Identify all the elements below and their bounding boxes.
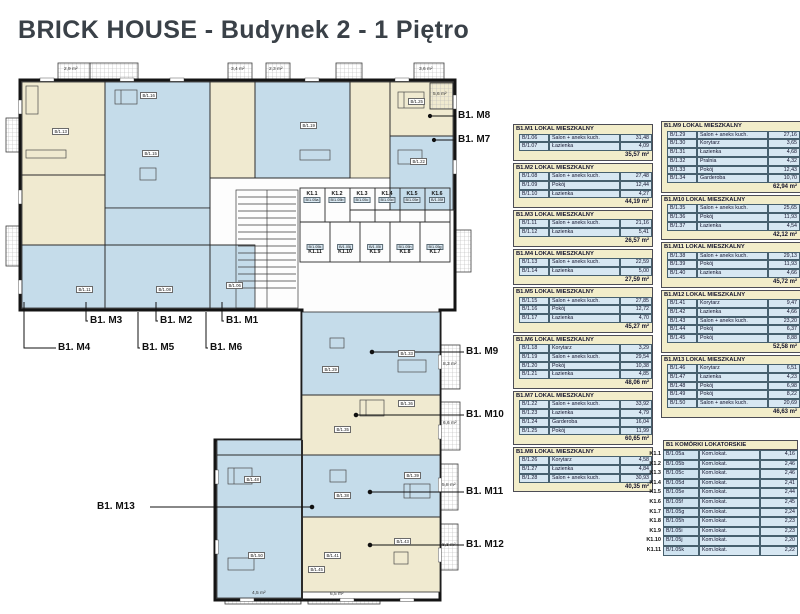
room-area: 8,22 bbox=[768, 390, 800, 399]
room-row: B/1.38Salon + aneks kuch.29,13 bbox=[662, 252, 800, 261]
room-code: B/1.12 bbox=[519, 228, 549, 237]
room-name: Pokój bbox=[697, 382, 768, 391]
room-name: Pokój bbox=[697, 166, 768, 175]
storage-unit-number: K1.11 bbox=[646, 546, 663, 556]
room-name: Salon + aneks kuch. bbox=[549, 474, 620, 483]
room-area: 6,51 bbox=[768, 364, 800, 373]
storage-area: 2,44 bbox=[760, 488, 798, 498]
balcony-area-label: 5,8 m² bbox=[442, 483, 456, 488]
apartment-table-header: B1.M7 LOKAL MIESZKALNY bbox=[514, 392, 652, 401]
storage-header-row: B1 KOMÓRKI LOKATORSKIE bbox=[646, 440, 798, 450]
apartment-table-header: B1.M9 LOKAL MIESZKALNY bbox=[662, 122, 800, 131]
room-name: Pokój bbox=[697, 325, 768, 334]
storage-unit-number: K1.10 bbox=[646, 536, 663, 546]
room-code: B/1.13 bbox=[519, 258, 549, 267]
room-area: 5,00 bbox=[620, 267, 652, 276]
room-code-tag: B/1.22 bbox=[410, 158, 427, 165]
room-code: B/1.41 bbox=[667, 299, 697, 308]
storage-name: Kom.lokat. bbox=[699, 469, 760, 479]
room-area: 4,66 bbox=[768, 269, 800, 278]
apartment-table: B1.M11 LOKAL MIESZKALNYB/1.38Salon + ane… bbox=[661, 242, 800, 287]
room-area: 4,23 bbox=[768, 373, 800, 382]
room-code-tag: B/1.41 bbox=[324, 552, 341, 559]
apartment-table-header: B1.M12 LOKAL MIESZKALNY bbox=[662, 291, 800, 300]
balcony-area-label: 2,3 m² bbox=[269, 67, 283, 72]
room-row: B/1.35Salon + aneks kuch.25,65 bbox=[662, 204, 800, 213]
apartment-total-area: 44,19 m² bbox=[514, 198, 652, 207]
room-area: 3,65 bbox=[768, 139, 800, 148]
room-code: B/1.23 bbox=[519, 409, 549, 418]
storage-code: B/1.05j bbox=[663, 536, 699, 546]
storage-unit-number: K1.8 bbox=[646, 517, 663, 527]
room-row: B/1.48Pokój6,98 bbox=[662, 382, 800, 391]
room-row: B/1.23Łazienka4,79 bbox=[514, 409, 652, 418]
room-code: B/1.32 bbox=[667, 157, 697, 166]
apartment-table: B1.M1 LOKAL MIESZKALNYB/1.06Salon + anek… bbox=[513, 124, 653, 161]
room-code-tag: B/1.50 bbox=[248, 552, 265, 559]
room-area: 4,79 bbox=[620, 409, 652, 418]
room-code: B/1.42 bbox=[667, 308, 697, 317]
storage-unit-number: K1.4 bbox=[646, 479, 663, 489]
room-row: B/1.40Łazienka4,66 bbox=[662, 269, 800, 278]
storage-row: K1.11B/1.05kKom.lokat.2,22 bbox=[646, 546, 798, 556]
apartment-tables-column-2: B1.M9 LOKAL MIESZKALNYB/1.29Salon + anek… bbox=[661, 121, 800, 420]
room-name: Łazienka bbox=[549, 228, 620, 237]
apartment-callout: B1. M12 bbox=[466, 539, 504, 550]
room-code: B/1.16 bbox=[519, 305, 549, 314]
storage-unit-id: K1.11 bbox=[307, 250, 324, 255]
room-area: 25,65 bbox=[768, 204, 800, 213]
room-row: B/1.44Pokój6,37 bbox=[662, 325, 800, 334]
room-code: B/1.19 bbox=[519, 353, 549, 362]
apartment-total-area: 46,63 m² bbox=[662, 408, 800, 417]
room-row: B/1.32Pralnia4,32 bbox=[662, 157, 800, 166]
apartment-table: B1.M2 LOKAL MIESZKALNYB/1.08Salon + anek… bbox=[513, 163, 653, 208]
apartment-table: B1.M12 LOKAL MIESZKALNYB/1.41Korytarz9,4… bbox=[661, 290, 800, 353]
balcony-area-label: 3,4 m² bbox=[231, 67, 245, 72]
room-name: Pokój bbox=[697, 260, 768, 269]
apartment-callout: B1. M6 bbox=[210, 342, 242, 353]
room-area: 12,72 bbox=[620, 305, 652, 314]
storage-code: B/1.05d bbox=[663, 479, 699, 489]
room-area: 10,38 bbox=[620, 362, 652, 371]
storage-code: B/1.05b bbox=[663, 460, 699, 470]
room-name: Salon + aneks kuch. bbox=[697, 399, 768, 408]
balcony-area-label: 8,3 m² bbox=[442, 543, 456, 548]
room-code: B/1.30 bbox=[667, 139, 697, 148]
storage-code: B/1.05k bbox=[663, 546, 699, 556]
apartment-table: B1.M3 LOKAL MIESZKALNYB/1.11Salon + anek… bbox=[513, 210, 653, 247]
room-name: Korytarz bbox=[697, 299, 768, 308]
storage-name: Kom.lokat. bbox=[699, 498, 760, 508]
room-row: B/1.42Łazienka4,66 bbox=[662, 308, 800, 317]
room-area: 29,54 bbox=[620, 353, 652, 362]
room-code: B/1.31 bbox=[667, 148, 697, 157]
room-name: Łazienka bbox=[697, 148, 768, 157]
room-name: Łazienka bbox=[549, 142, 620, 151]
room-code: B/1.21 bbox=[519, 370, 549, 379]
storage-area: 2,24 bbox=[760, 508, 798, 518]
room-code: B/1.07 bbox=[519, 142, 549, 151]
room-area: 31,48 bbox=[620, 134, 652, 143]
storage-unit-id: K1.6 bbox=[429, 192, 445, 197]
balcony-area-label: 6,5 m² bbox=[330, 592, 344, 597]
room-row: B/1.14Łazienka5,00 bbox=[514, 267, 652, 276]
room-code-tag: B/1.45 bbox=[308, 566, 325, 573]
storage-unit-id: K1.8 bbox=[396, 250, 413, 255]
room-row: B/1.19Salon + aneks kuch.29,54 bbox=[514, 353, 652, 362]
room-code: B/1.06 bbox=[519, 134, 549, 143]
storage-table-title: B1 KOMÓRKI LOKATORSKIE bbox=[663, 440, 798, 450]
room-area: 20,69 bbox=[768, 399, 800, 408]
storage-row: K1.8B/1.05hKom.lokat.2,23 bbox=[646, 517, 798, 527]
storage-unit-plan-label: K1.1B/1.05a bbox=[303, 192, 320, 203]
storage-name: Kom.lokat. bbox=[699, 488, 760, 498]
storage-name: Kom.lokat. bbox=[699, 450, 760, 460]
room-name: Łazienka bbox=[549, 370, 620, 379]
apartment-total-area: 40,35 m² bbox=[514, 483, 652, 492]
storage-unit-code: B/1.05d bbox=[378, 197, 395, 203]
room-code: B/1.38 bbox=[667, 252, 697, 261]
apartment-table-header: B1.M10 LOKAL MIESZKALNY bbox=[662, 196, 800, 205]
storage-area: 2,23 bbox=[760, 527, 798, 537]
apartment-callout: B1. M4 bbox=[58, 342, 90, 353]
room-code-tag: B/1.19 bbox=[300, 122, 317, 129]
room-area: 29,13 bbox=[768, 252, 800, 261]
apartment-callout: B1. M9 bbox=[466, 346, 498, 357]
apartment-total-area: 35,57 m² bbox=[514, 151, 652, 160]
room-name: Łazienka bbox=[697, 222, 768, 231]
room-code-tag: B/1.39 bbox=[404, 472, 421, 479]
storage-unit-plan-label: B/1.05jK1.10 bbox=[337, 244, 353, 255]
apartment-table-header: B1.M6 LOKAL MIESZKALNY bbox=[514, 336, 652, 345]
room-area: 27,85 bbox=[620, 297, 652, 306]
room-row: B/1.27Łazienka4,84 bbox=[514, 465, 652, 474]
room-code-tag: B/1.35 bbox=[334, 426, 351, 433]
storage-unit-plan-label: B/1.05kK1.11 bbox=[307, 244, 324, 255]
room-row: B/1.09Pokój12,44 bbox=[514, 181, 652, 190]
room-code: B/1.26 bbox=[519, 456, 549, 465]
room-code: B/1.43 bbox=[667, 317, 697, 326]
room-name: Pokój bbox=[697, 213, 768, 222]
storage-row: K1.1B/1.05aKom.lokat.4,16 bbox=[646, 450, 798, 460]
storage-unit-id: K1.9 bbox=[367, 250, 383, 255]
room-code-tag: B/1.13 bbox=[52, 128, 69, 135]
room-area: 12,43 bbox=[768, 166, 800, 175]
storage-unit-number: K1.1 bbox=[646, 450, 663, 460]
room-code: B/1.29 bbox=[667, 131, 697, 140]
room-area: 6,37 bbox=[768, 325, 800, 334]
room-name: Korytarz bbox=[549, 456, 620, 465]
apartment-table: B1.M7 LOKAL MIESZKALNYB/1.22Salon + anek… bbox=[513, 391, 653, 445]
storage-unit-plan-label: B/1.05iK1.9 bbox=[367, 244, 383, 255]
storage-code: B/1.05g bbox=[663, 508, 699, 518]
storage-unit-number: K1.2 bbox=[646, 460, 663, 470]
storage-row: K1.6B/1.05fKom.lokat.2,45 bbox=[646, 498, 798, 508]
apartment-total-area: 42,12 m² bbox=[662, 231, 800, 240]
apartment-total-area: 27,59 m² bbox=[514, 276, 652, 285]
room-name: Łazienka bbox=[549, 314, 620, 323]
storage-code: B/1.05c bbox=[663, 469, 699, 479]
room-name: Salon + aneks kuch. bbox=[697, 204, 768, 213]
room-name: Salon + aneks kuch. bbox=[549, 134, 620, 143]
room-area: 11,99 bbox=[620, 427, 652, 436]
room-code: B/1.44 bbox=[667, 325, 697, 334]
room-row: B/1.34Garderoba10,70 bbox=[662, 174, 800, 183]
room-area: 33,92 bbox=[620, 400, 652, 409]
room-code: B/1.49 bbox=[667, 390, 697, 399]
room-row: B/1.39Pokój11,93 bbox=[662, 260, 800, 269]
room-name: Pralnia bbox=[697, 157, 768, 166]
room-name: Łazienka bbox=[549, 465, 620, 474]
storage-name: Kom.lokat. bbox=[699, 460, 760, 470]
storage-unit-code: B/1.05e bbox=[403, 197, 420, 203]
room-code: B/1.09 bbox=[519, 181, 549, 190]
apartment-callout: B1. M5 bbox=[142, 342, 174, 353]
storage-table: B1 KOMÓRKI LOKATORSKIEK1.1B/1.05aKom.lok… bbox=[646, 440, 798, 556]
room-area: 11,93 bbox=[768, 213, 800, 222]
room-code: B/1.24 bbox=[519, 418, 549, 427]
room-area: 5,41 bbox=[620, 228, 652, 237]
apartment-table: B1.M10 LOKAL MIESZKALNYB/1.35Salon + ane… bbox=[661, 195, 800, 240]
room-code-tag: B/1.48 bbox=[244, 476, 261, 483]
storage-area: 2,46 bbox=[760, 469, 798, 479]
apartment-table: B1.M13 LOKAL MIESZKALNYB/1.46Korytarz6,5… bbox=[661, 355, 800, 418]
room-code: B/1.27 bbox=[519, 465, 549, 474]
apartment-tables-column-1: B1.M1 LOKAL MIESZKALNYB/1.06Salon + anek… bbox=[513, 124, 653, 494]
apartment-total-area: 52,58 m² bbox=[662, 343, 800, 352]
storage-unit-number: K1.9 bbox=[646, 527, 663, 537]
room-row: B/1.25Pokój11,99 bbox=[514, 427, 652, 436]
room-area: 12,44 bbox=[620, 181, 652, 190]
room-row: B/1.49Pokój8,22 bbox=[662, 390, 800, 399]
room-row: B/1.15Salon + aneks kuch.27,85 bbox=[514, 297, 652, 306]
room-code: B/1.10 bbox=[519, 190, 549, 199]
room-row: B/1.17Łazienka4,70 bbox=[514, 314, 652, 323]
room-name: Salon + aneks kuch. bbox=[549, 353, 620, 362]
storage-unit-plan-label: K1.3B/1.05c bbox=[354, 192, 371, 203]
room-row: B/1.37Łazienka4,54 bbox=[662, 222, 800, 231]
room-name: Salon + aneks kuch. bbox=[549, 297, 620, 306]
apartment-table-header: B1.M1 LOKAL MIESZKALNY bbox=[514, 125, 652, 134]
room-code: B/1.15 bbox=[519, 297, 549, 306]
room-row: B/1.12Łazienka5,41 bbox=[514, 228, 652, 237]
room-row: B/1.24Garderoba16,04 bbox=[514, 418, 652, 427]
room-code-tag: B/1.33 bbox=[398, 350, 415, 357]
room-code: B/1.33 bbox=[667, 166, 697, 175]
room-code: B/1.28 bbox=[519, 474, 549, 483]
room-code: B/1.17 bbox=[519, 314, 549, 323]
room-row: B/1.46Korytarz6,51 bbox=[662, 364, 800, 373]
room-name: Garderoba bbox=[549, 418, 620, 427]
room-name: Pokój bbox=[549, 181, 620, 190]
room-row: B/1.18Korytarz3,29 bbox=[514, 344, 652, 353]
storage-row: K1.5B/1.05eKom.lokat.2,44 bbox=[646, 488, 798, 498]
room-row: B/1.47Łazienka4,23 bbox=[662, 373, 800, 382]
storage-unit-number: K1.7 bbox=[646, 508, 663, 518]
apartment-callout: B1. M1 bbox=[226, 315, 258, 326]
storage-header-spacer bbox=[646, 440, 663, 450]
room-code: B/1.22 bbox=[519, 400, 549, 409]
apartment-table: B1.M5 LOKAL MIESZKALNYB/1.15Salon + anek… bbox=[513, 287, 653, 332]
storage-unit-code: B/1.05f bbox=[429, 197, 445, 203]
room-area: 4,54 bbox=[768, 222, 800, 231]
room-name: Korytarz bbox=[549, 344, 620, 353]
room-area: 4,66 bbox=[768, 308, 800, 317]
room-row: B/1.33Pokój12,43 bbox=[662, 166, 800, 175]
room-code: B/1.25 bbox=[519, 427, 549, 436]
storage-unit-plan-label: K1.5B/1.05e bbox=[403, 192, 420, 203]
room-area: 27,48 bbox=[620, 172, 652, 181]
room-name: Salon + aneks kuch. bbox=[549, 219, 620, 228]
apartment-table-header: B1.M2 LOKAL MIESZKALNY bbox=[514, 164, 652, 173]
room-area: 21,16 bbox=[620, 219, 652, 228]
storage-unit-plan-label: B/1.05gK1.7 bbox=[426, 244, 443, 255]
storage-row: K1.9B/1.05iKom.lokat.2,23 bbox=[646, 527, 798, 537]
room-code: B/1.35 bbox=[667, 204, 697, 213]
room-name: Łazienka bbox=[549, 267, 620, 276]
room-name: Korytarz bbox=[697, 139, 768, 148]
storage-area: 2,41 bbox=[760, 479, 798, 489]
storage-unit-code: B/1.05b bbox=[328, 197, 345, 203]
room-row: B/1.26Korytarz4,58 bbox=[514, 456, 652, 465]
room-code: B/1.45 bbox=[667, 334, 697, 343]
room-code-tag: B/1.25 bbox=[408, 98, 425, 105]
apartment-total-area: 45,27 m² bbox=[514, 323, 652, 332]
room-area: 4,27 bbox=[620, 190, 652, 199]
storage-name: Kom.lokat. bbox=[699, 517, 760, 527]
apartment-callout: B1. M11 bbox=[466, 486, 503, 497]
rooms bbox=[22, 82, 453, 598]
balcony-area-label: 6,6 m² bbox=[443, 421, 457, 426]
room-area: 22,59 bbox=[620, 258, 652, 267]
room-area: 6,98 bbox=[768, 382, 800, 391]
room-code: B/1.20 bbox=[519, 362, 549, 371]
room-code-tag: B/1.38 bbox=[334, 492, 351, 499]
storage-name: Kom.lokat. bbox=[699, 508, 760, 518]
apartment-callout: B1. M2 bbox=[160, 315, 192, 326]
room-name: Łazienka bbox=[549, 409, 620, 418]
room-code-tag: B/1.06 bbox=[226, 282, 243, 289]
storage-unit-plan-label: K1.4B/1.05d bbox=[378, 192, 395, 203]
room-area: 23,20 bbox=[768, 317, 800, 326]
storage-unit-plan-label: K1.2B/1.05b bbox=[328, 192, 345, 203]
room-area: 11,93 bbox=[768, 260, 800, 269]
room-area: 4,09 bbox=[620, 142, 652, 151]
apartment-total-area: 26,57 m² bbox=[514, 237, 652, 246]
apartment-total-area: 60,65 m² bbox=[514, 435, 652, 444]
storage-unit-number: K1.5 bbox=[646, 488, 663, 498]
storage-name: Kom.lokat. bbox=[699, 479, 760, 489]
room-code-tag: B/1.36 bbox=[398, 400, 415, 407]
balcony-area-label: 3,6 m² bbox=[419, 67, 433, 72]
room-name: Łazienka bbox=[697, 373, 768, 382]
storage-name: Kom.lokat. bbox=[699, 527, 760, 537]
storage-area: 2,20 bbox=[760, 536, 798, 546]
apartment-callout: B1. M13 bbox=[97, 501, 135, 512]
room-code: B/1.46 bbox=[667, 364, 697, 373]
apartment-table-header: B1.M13 LOKAL MIESZKALNY bbox=[662, 356, 800, 365]
room-row: B/1.43Salon + aneks kuch.23,20 bbox=[662, 317, 800, 326]
storage-area: 4,16 bbox=[760, 450, 798, 460]
room-row: B/1.31Łazienka4,68 bbox=[662, 148, 800, 157]
room-code: B/1.48 bbox=[667, 382, 697, 391]
room-area: 10,70 bbox=[768, 174, 800, 183]
room-code-tag: B/1.29 bbox=[322, 366, 339, 373]
room-name: Łazienka bbox=[697, 308, 768, 317]
balcony-area-label: 5,6 m² bbox=[433, 92, 447, 97]
room-name: Salon + aneks kuch. bbox=[549, 172, 620, 181]
apartment-total-area: 45,72 m² bbox=[662, 278, 800, 287]
storage-unit-number: K1.6 bbox=[646, 498, 663, 508]
room-code: B/1.14 bbox=[519, 267, 549, 276]
room-row: B/1.21Łazienka4,85 bbox=[514, 370, 652, 379]
storage-code: B/1.05e bbox=[663, 488, 699, 498]
apartment-table-header: B1.M11 LOKAL MIESZKALNY bbox=[662, 243, 800, 252]
apartment-total-area: 62,94 m² bbox=[662, 183, 800, 192]
storage-row: K1.4B/1.05dKom.lokat.2,41 bbox=[646, 479, 798, 489]
storage-area: 2,22 bbox=[760, 546, 798, 556]
room-name: Salon + aneks kuch. bbox=[549, 258, 620, 267]
room-row: B/1.10Łazienka4,27 bbox=[514, 190, 652, 199]
storage-row: K1.2B/1.05bKom.lokat.2,46 bbox=[646, 460, 798, 470]
room-code-tag: B/1.15 bbox=[142, 150, 159, 157]
room-code: B/1.47 bbox=[667, 373, 697, 382]
room-code: B/1.37 bbox=[667, 222, 697, 231]
storage-name: Kom.lokat. bbox=[699, 546, 760, 556]
apartment-callout: B1. M7 bbox=[458, 134, 490, 145]
room-name: Salon + aneks kuch. bbox=[697, 317, 768, 326]
room-area: 3,29 bbox=[620, 344, 652, 353]
room-name: Pokój bbox=[697, 334, 768, 343]
room-area: 9,47 bbox=[768, 299, 800, 308]
room-row: B/1.22Salon + aneks kuch.33,92 bbox=[514, 400, 652, 409]
apartment-table: B1.M9 LOKAL MIESZKALNYB/1.29Salon + anek… bbox=[661, 121, 800, 193]
storage-unit-number: K1.3 bbox=[646, 469, 663, 479]
room-area: 8,88 bbox=[768, 334, 800, 343]
room-row: B/1.16Pokój12,72 bbox=[514, 305, 652, 314]
room-area: 4,68 bbox=[768, 148, 800, 157]
room-row: B/1.30Korytarz3,65 bbox=[662, 139, 800, 148]
storage-unit-id: K1.7 bbox=[426, 250, 443, 255]
page-root: BRICK HOUSE - Budynek 2 - 1 Piętro bbox=[0, 0, 800, 614]
storage-unit-plan-label: B/1.05hK1.8 bbox=[396, 244, 413, 255]
apartment-callout: B1. M10 bbox=[466, 409, 504, 420]
apartment-table-header: B1.M8 LOKAL MIESZKALNY bbox=[514, 448, 652, 457]
storage-area: 2,23 bbox=[760, 517, 798, 527]
storage-code: B/1.05h bbox=[663, 517, 699, 527]
storage-row: K1.10B/1.05jKom.lokat.2,20 bbox=[646, 536, 798, 546]
room-row: B/1.28Salon + aneks kuch.30,93 bbox=[514, 474, 652, 483]
room-row: B/1.07Łazienka4,09 bbox=[514, 142, 652, 151]
room-row: B/1.36Pokój11,93 bbox=[662, 213, 800, 222]
room-row: B/1.11Salon + aneks kuch.21,16 bbox=[514, 219, 652, 228]
room-row: B/1.29Salon + aneks kuch.27,16 bbox=[662, 131, 800, 140]
room-code: B/1.36 bbox=[667, 213, 697, 222]
apartment-table: B1.M6 LOKAL MIESZKALNYB/1.18Korytarz3,29… bbox=[513, 335, 653, 389]
room-name: Salon + aneks kuch. bbox=[549, 400, 620, 409]
storage-code: B/1.05a bbox=[663, 450, 699, 460]
room-code: B/1.11 bbox=[519, 219, 549, 228]
storage-code: B/1.05f bbox=[663, 498, 699, 508]
room-row: B/1.08Salon + aneks kuch.27,48 bbox=[514, 172, 652, 181]
apartment-table: B1.M4 LOKAL MIESZKALNYB/1.13Salon + anek… bbox=[513, 249, 653, 286]
room-code-tag: B/1.08 bbox=[156, 286, 173, 293]
room-code-tag: B/1.43 bbox=[394, 538, 411, 545]
room-name: Łazienka bbox=[549, 190, 620, 199]
room-name: Garderoba bbox=[697, 174, 768, 183]
apartment-callout: B1. M8 bbox=[458, 110, 490, 121]
